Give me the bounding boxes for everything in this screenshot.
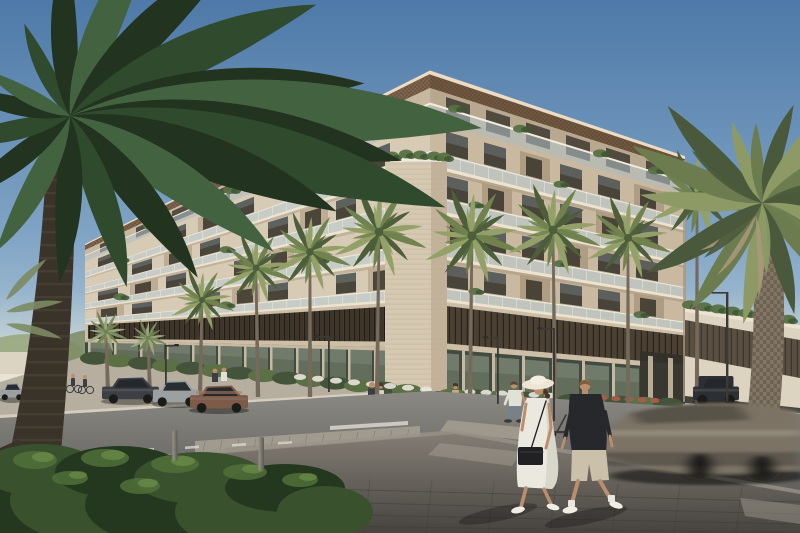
- lamp-head: [537, 327, 542, 329]
- background-figure: [213, 369, 218, 374]
- architectural-rendering: [0, 0, 800, 533]
- 0.9: [638, 397, 647, 402]
- rendering-canvas: [0, 0, 800, 533]
- 0.9: [348, 379, 360, 385]
- street-lamp: [165, 345, 167, 385]
- lamp-head: [174, 344, 179, 346]
- cyclist: [71, 378, 75, 386]
- bollard: [173, 430, 178, 461]
- 0.95: [686, 453, 714, 479]
- background-figure: [222, 368, 227, 373]
- lamp-head: [483, 336, 488, 338]
- 0.9: [641, 313, 650, 318]
- 0.7: [138, 479, 158, 488]
- 0.9: [330, 378, 342, 384]
- 0.9: [476, 204, 485, 209]
- street-lamp: [497, 337, 499, 404]
- 0.7: [32, 452, 54, 462]
- cyclist: [83, 379, 87, 387]
- 0.9: [476, 290, 485, 295]
- 0.9: [456, 107, 466, 113]
- lamp-head: [314, 335, 319, 337]
- street-lamp: [328, 336, 330, 392]
- 0.9: [294, 374, 306, 380]
- 0.7: [299, 473, 317, 481]
- 0.9: [561, 183, 570, 188]
- street-lamp: [726, 292, 728, 401]
- 0.95: [748, 455, 776, 481]
- 0.9: [601, 151, 611, 157]
- 0.9: [384, 383, 396, 389]
- 0.7: [69, 471, 87, 479]
- 0.9: [444, 156, 454, 162]
- 0.9: [521, 127, 531, 133]
- 0.9: [121, 295, 130, 300]
- 0.9: [651, 398, 660, 403]
- 0.7: [101, 450, 125, 460]
- 0.9: [312, 376, 324, 382]
- sock: [608, 495, 615, 502]
- bollard: [259, 437, 265, 471]
- 0.85: [788, 318, 798, 324]
- 0.9: [612, 396, 621, 401]
- 0.9: [402, 385, 414, 391]
- street-lamp: [553, 328, 555, 421]
- crossbody-bag: [518, 447, 543, 465]
